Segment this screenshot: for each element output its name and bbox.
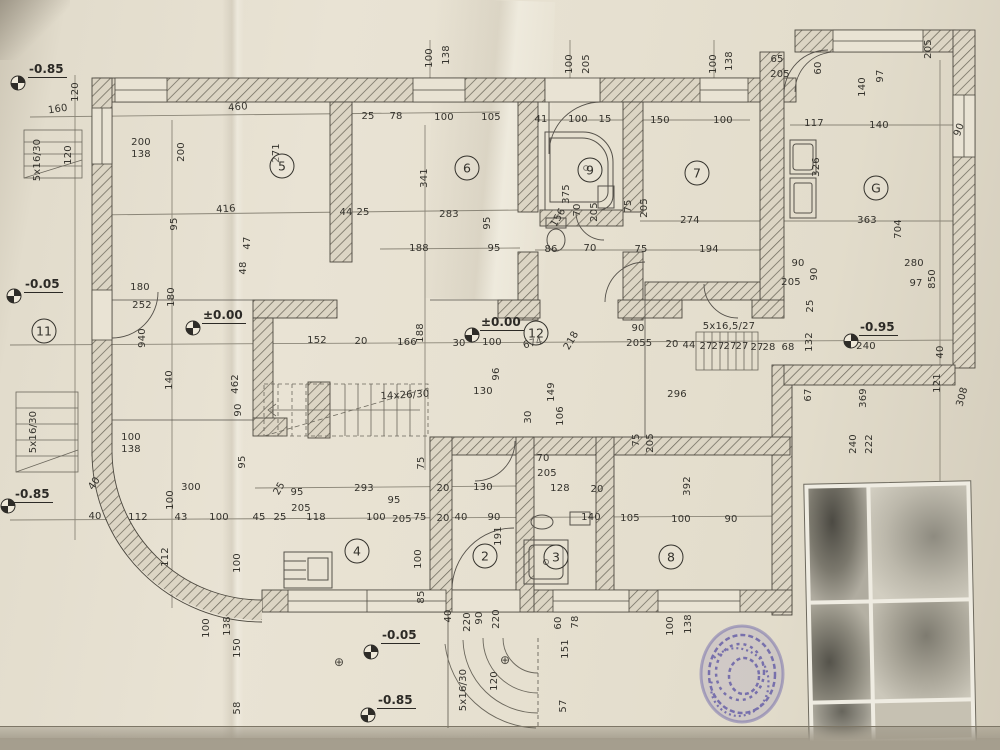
room-number-5: 5 — [270, 154, 295, 179]
room-number-2: 2 — [473, 544, 498, 569]
dimension-label: 220 — [492, 609, 502, 629]
elevation-value: -0.85 — [28, 62, 67, 78]
dimension-label: 5x16/30 — [33, 139, 43, 182]
photo-thumbnail — [808, 487, 868, 600]
dimension-label: 188 — [416, 323, 426, 343]
dimension-label: 30 — [524, 410, 534, 423]
dimension-label: 5x16/30 — [29, 411, 39, 454]
dimension-label: 28 — [762, 343, 775, 353]
dimension-label: 200 — [177, 142, 187, 162]
dimension-label: 392 — [683, 476, 693, 496]
dimension-label: 70 — [536, 454, 549, 464]
dimension-label: 100 — [713, 116, 733, 126]
dimension-label: 90 — [724, 515, 737, 525]
dimension-label: 100 — [482, 338, 502, 348]
dimension-label: 78 — [571, 615, 581, 628]
dimension-label: 120 — [64, 145, 74, 165]
dimension-label: 150 — [233, 638, 243, 658]
dimension-label: 105 — [620, 514, 640, 524]
dimension-label: 70 — [573, 203, 583, 216]
dimension-label: 138 — [725, 51, 735, 71]
dimension-label: 90 — [791, 259, 804, 269]
elevation-value: ±0.00 — [202, 308, 246, 324]
dimension-label: 416 — [216, 204, 236, 215]
dimension-label: 293 — [354, 484, 374, 494]
dimension-label: 58 — [233, 701, 243, 714]
room-number-6: 6 — [455, 156, 480, 181]
dimension-label: 95 — [487, 244, 500, 254]
dimension-label: 240 — [856, 342, 876, 352]
room-number-9: 9 — [578, 158, 603, 183]
dimension-label: 205 — [646, 433, 656, 453]
dimension-label: 27 — [735, 342, 748, 352]
dimension-label: 117 — [804, 119, 824, 129]
dimension-label: 44 — [339, 208, 352, 218]
dimension-label: 25 — [273, 513, 286, 523]
dimension-label: 96 — [492, 367, 502, 380]
dimension-label: 121 — [933, 373, 943, 393]
dimension-label: 75 — [417, 456, 427, 469]
dimension-label: 40 — [444, 609, 454, 622]
dimension-label: 100 — [425, 48, 435, 68]
dimension-label: 166 — [397, 338, 417, 348]
dimension-label: 70 — [583, 244, 596, 254]
dimension-label: 205 — [626, 339, 646, 349]
room-number-8: 8 — [659, 545, 684, 570]
dimension-label: 75 — [632, 433, 642, 446]
dimension-label: 341 — [420, 168, 430, 188]
dimension-label: 95 — [483, 216, 493, 229]
dimension-label: 60 — [554, 616, 564, 629]
dimension-label: 100 — [233, 553, 243, 573]
dimension-label: 100 — [414, 549, 424, 569]
dimension-label: 97 — [909, 279, 922, 289]
dimension-label: 460 — [228, 102, 248, 114]
dimension-label: 95 — [387, 496, 400, 506]
dimension-label: 138 — [121, 445, 141, 455]
dimension-label: 90 — [475, 611, 485, 624]
dimension-label: 326 — [812, 157, 822, 177]
dimension-label: 205 — [924, 39, 934, 59]
dimension-label: 40 — [88, 512, 101, 522]
dimension-label: 205 — [582, 54, 592, 74]
dimension-label: 283 — [439, 210, 459, 220]
left-porch-stairs — [16, 130, 82, 472]
dimension-label: 200 — [131, 138, 151, 148]
dimension-label: 120 — [490, 671, 500, 691]
photo-thumbnail — [870, 485, 968, 599]
dimension-label: 60 — [814, 61, 824, 74]
survey-point-symbol: ⊕ — [500, 653, 510, 667]
dimension-label: 112 — [161, 547, 171, 567]
dimension-label: 252 — [132, 301, 152, 311]
dimension-label: 90 — [631, 324, 644, 334]
dimension-label: 940 — [138, 328, 148, 348]
dimension-label: 25 — [806, 299, 816, 312]
room-number-4: 4 — [345, 539, 370, 564]
dimension-label: 75 — [413, 513, 426, 523]
dimension-label: 57 — [559, 699, 569, 712]
dimension-label: 100 — [202, 618, 212, 638]
dimension-label: 25 — [356, 208, 369, 218]
dimension-label: 90 — [487, 513, 500, 523]
dimension-label: 240 — [849, 434, 859, 454]
dimension-label: 100 — [166, 490, 176, 510]
dimension-label: 100 — [568, 115, 588, 125]
dimension-label: 100 — [366, 513, 386, 523]
room-number-11: 11 — [32, 319, 57, 344]
dimension-label: 140 — [869, 121, 889, 131]
elevation-value: -0.95 — [859, 320, 898, 336]
dimension-label: 191 — [494, 526, 504, 546]
dimension-label: 118 — [306, 513, 326, 523]
dimension-label: 48 — [239, 261, 249, 274]
elevation-value: -0.05 — [24, 277, 63, 293]
elevation-value: -0.85 — [377, 693, 416, 709]
dimension-label: 138 — [223, 616, 233, 636]
dimension-label: 138 — [442, 45, 452, 65]
dimension-label: 128 — [550, 484, 570, 494]
dimension-label: 140 — [165, 370, 175, 390]
dimension-label: 222 — [865, 434, 875, 454]
dimension-label: 205 — [770, 70, 790, 80]
rounded-corner-wall — [102, 452, 262, 610]
kitchen-appliances — [790, 52, 835, 218]
dimension-label: 40 — [454, 513, 467, 523]
dimension-label: 138 — [131, 150, 151, 160]
dimension-label: 188 — [409, 244, 429, 254]
dimension-label: 205 — [640, 198, 650, 218]
dimension-label: 280 — [904, 259, 924, 269]
dimension-label: 67 — [804, 388, 814, 401]
dimension-label: 205 — [590, 202, 600, 222]
dimension-label: 152 — [307, 336, 327, 346]
dimension-label: 220 — [463, 612, 473, 632]
dimension-label: 97 — [876, 69, 886, 82]
dimension-label: 100 — [671, 515, 691, 525]
dimension-label: 20 — [436, 484, 449, 494]
dimension-label: 45 — [252, 513, 265, 523]
dimension-label: 205 — [537, 469, 557, 479]
elevation-marker — [363, 644, 379, 664]
dimension-label: 138 — [684, 614, 694, 634]
dimension-label: 5x16,5/27 — [703, 322, 755, 332]
dimension-label: 140 — [581, 513, 601, 523]
dimension-label: 100 — [709, 54, 719, 74]
dimension-label: 363 — [857, 216, 877, 226]
elevation-marker — [6, 288, 22, 308]
scanned-floor-plan: 1201604602001382005x16/30120416952714748… — [0, 0, 1000, 750]
dimension-label: 375 — [562, 184, 572, 204]
dimension-label: 90 — [810, 267, 820, 280]
dimension-label: 112 — [128, 513, 148, 523]
dimension-label: 150 — [650, 116, 670, 126]
dimension-label: 47 — [243, 236, 253, 249]
dimension-label: 100 — [434, 113, 454, 123]
dimension-label: 149 — [547, 382, 557, 402]
dimension-label: 130 — [473, 483, 493, 493]
photo-thumbnail — [811, 603, 871, 700]
dimension-label: 20 — [436, 514, 449, 524]
elevation-marker — [464, 327, 480, 347]
dimension-label: 75 — [634, 245, 647, 255]
dimension-label: 180 — [130, 283, 150, 293]
dimension-label: 300 — [181, 483, 201, 493]
dimension-label: 274 — [680, 216, 700, 226]
dimension-label: 120 — [71, 82, 81, 102]
attached-photos — [803, 480, 976, 745]
elevation-value: ±0.00 — [480, 315, 524, 331]
dimension-label: 95 — [238, 455, 248, 468]
dimension-label: 369 — [859, 388, 869, 408]
dimension-label: 194 — [699, 245, 719, 255]
dimension-label: 100 — [565, 54, 575, 74]
elevation-marker — [843, 333, 859, 353]
dimension-label: 68 — [781, 343, 794, 353]
dimension-label: 462 — [231, 374, 241, 394]
dimension-label: 65 — [770, 55, 783, 65]
dimension-label: 95 — [170, 217, 180, 230]
dimension-label: 132 — [805, 332, 815, 352]
dimension-label: 5 — [646, 339, 653, 349]
dimension-label: 86 — [544, 245, 557, 255]
dimension-label: 95 — [290, 488, 303, 498]
room-number-7: 7 — [685, 161, 710, 186]
photo-thumbnail — [873, 601, 971, 699]
room-number-3: 3 — [544, 545, 569, 570]
dimension-label: 20 — [665, 340, 678, 350]
dimension-label: 100 — [121, 433, 141, 443]
dimension-label: 5x16/30 — [459, 669, 469, 712]
dimension-label: 78 — [389, 112, 402, 122]
dimension-label: 180 — [167, 287, 177, 307]
dimension-label: 205 — [781, 278, 801, 288]
dimension-label: 106 — [556, 406, 566, 426]
room-number-G: G — [864, 176, 889, 201]
room-number-12: 12 — [524, 321, 549, 346]
elevation-value: -0.05 — [381, 628, 420, 644]
dimension-label: 704 — [894, 219, 904, 239]
dimension-label: 43 — [174, 513, 187, 523]
dimension-label: 40 — [936, 345, 946, 358]
dimension-label: 296 — [667, 390, 687, 400]
dimension-label: 44 — [682, 341, 695, 351]
dimension-label: 100 — [209, 513, 229, 523]
survey-point-symbol: ⊕ — [334, 655, 344, 669]
dimension-label: 25 — [361, 112, 374, 122]
dimension-label: 15 — [598, 115, 611, 125]
elevation-marker — [360, 707, 376, 727]
dimension-label: 151 — [561, 639, 571, 659]
dimension-label: 20 — [354, 337, 367, 347]
blue-ink-stamp — [694, 618, 794, 733]
washbasin — [598, 186, 614, 208]
dimension-label: 205 — [392, 515, 412, 525]
paper-bottom-edge — [0, 726, 1000, 750]
dimension-label: 100 — [666, 616, 676, 636]
elevation-marker — [185, 320, 201, 340]
dimension-label: 850 — [928, 269, 938, 289]
elevation-marker — [10, 75, 26, 95]
elevation-value: -0.85 — [14, 487, 53, 503]
dimension-label: 20 — [590, 485, 603, 495]
room4-counter — [284, 552, 332, 588]
dimension-label: 105 — [481, 113, 501, 123]
dimension-label: 140 — [858, 77, 868, 97]
dimension-label: 130 — [473, 387, 493, 397]
dimension-label: 41 — [534, 115, 547, 125]
dimension-label: 90 — [234, 403, 244, 416]
dimension-label: 75 — [624, 199, 634, 212]
dimension-label: 85 — [417, 590, 427, 603]
